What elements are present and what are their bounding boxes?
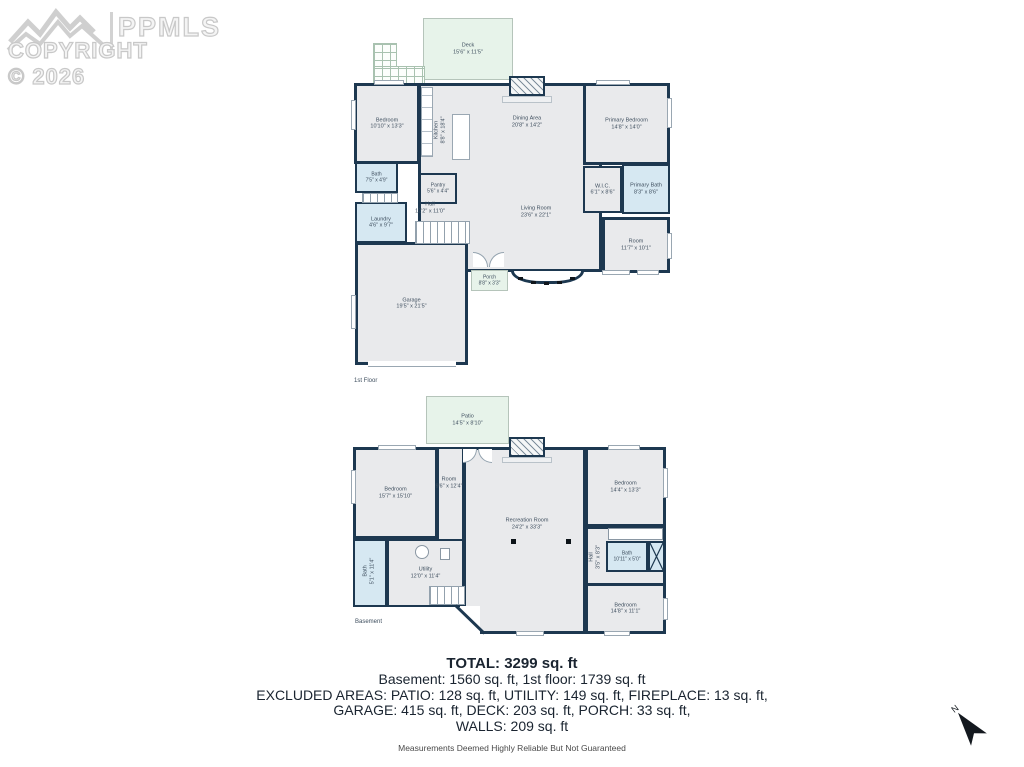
walk-in-closet: W.I.C.6'1" x 8'6" (583, 166, 622, 213)
excluded-areas-text-3: WALLS: 209 sq. ft (0, 719, 1024, 735)
room-basement (437, 447, 464, 554)
garage-door-icon (368, 361, 456, 367)
north-arrow-icon: N (948, 698, 1000, 760)
kitchen-cabinets-icon (421, 87, 433, 157)
closet-icon (362, 193, 398, 203)
water-heater-icon (440, 548, 450, 560)
window-icon (667, 98, 672, 128)
disclaimer-text: Measurements Deemed Highly Reliable But … (0, 743, 1024, 753)
excluded-areas-text-1: EXCLUDED AREAS: PATIO: 128 sq. ft, UTILI… (0, 688, 1024, 704)
floor-plan-page: PPMLS COPYRIGHT © 2026 Deck15'6" x 11'5"… (0, 0, 1024, 767)
fireplace-hearth-icon (502, 457, 552, 463)
bath-basement-right: Bath10'11" x 5'0" (606, 541, 648, 572)
primary-bedroom: Primary Bedroom14'8" x 14'0" (583, 83, 670, 165)
window-icon (516, 631, 544, 636)
floors-area-text: Basement: 1560 sq. ft, 1st floor: 1739 s… (0, 672, 1024, 688)
bedroom-basement-bottom: Bedroom14'8" x 11'1" (585, 583, 666, 634)
hall-label: Hall12'2" x 11'0" (415, 202, 445, 215)
closet-icon (608, 528, 663, 540)
furnace-icon (415, 545, 429, 559)
room-basement-label: Room9'6" x 12'4" (435, 477, 462, 490)
fireplace-icon (509, 437, 545, 457)
flex-room: Room11'7" x 10'1" (602, 217, 670, 273)
window-icon (608, 445, 640, 450)
bedroom-basement-left: Bedroom15'7" x 15'10" (353, 447, 438, 539)
window-icon (351, 470, 356, 504)
garage: Garage19'5" x 21'5" (355, 242, 468, 365)
crawl-space-x-icon (648, 541, 665, 572)
window-icon (667, 233, 672, 259)
patio-area: Patio14'5" x 8'10" (426, 396, 509, 444)
fireplace-hearth-icon (502, 96, 552, 103)
first-floor-name: 1st Floor (354, 378, 377, 384)
window-icon (374, 80, 404, 85)
bedroom-first-floor: Bedroom10'10" x 13'3" (354, 83, 420, 164)
support-post-icon (511, 539, 516, 544)
bath-first-floor: Bath7'5" x 4'9" (355, 162, 398, 193)
area-summary: TOTAL: 3299 sq. ft Basement: 1560 sq. ft… (0, 655, 1024, 753)
laundry-room: Laundry4'6" x 9'7" (355, 202, 407, 243)
deck-area: Deck15'6" x 11'5" (423, 18, 513, 80)
kitchen-island-icon (452, 114, 470, 160)
window-icon (596, 80, 630, 85)
window-icon (663, 468, 668, 498)
window-icon (351, 100, 356, 130)
stairs-icon (429, 586, 465, 605)
fireplace-icon (509, 76, 545, 96)
window-icon (663, 598, 668, 620)
pantry-room: Pantry5'6" x 4'4" (419, 173, 457, 204)
bedroom-basement-right: Bedroom14'4" x 13'3" (585, 447, 666, 527)
total-area-text: TOTAL: 3299 sq. ft (0, 655, 1024, 672)
basement-floor-name: Basement (355, 619, 382, 625)
window-icon (378, 445, 416, 450)
dining-area-label: Dining Area20'8" x 14'2" (512, 116, 542, 129)
window-icon (351, 295, 356, 329)
window-icon (637, 270, 659, 275)
excluded-areas-text-2: GARAGE: 415 sq. ft, DECK: 203 sq. ft, PO… (0, 703, 1024, 719)
recreation-room-label: Recreation Room24'2" x 33'3" (506, 518, 549, 531)
stairs-icon (415, 221, 470, 244)
kitchen-label: Kitchen8'8" x 18'4" (434, 116, 447, 143)
primary-bath: Primary Bath8'3" x 8'6" (622, 164, 670, 214)
living-room-label: Living Room23'6" x 22'1" (521, 206, 552, 219)
bath-basement-left-label: Bath5'1" x 11'4" (363, 558, 376, 585)
porch-area: Porch8'8" x 3'3" (471, 270, 508, 291)
window-icon (604, 631, 630, 636)
copyright-text: COPYRIGHT © 2026 (8, 38, 148, 90)
window-icon (602, 270, 630, 275)
hall-basement-label: Hall3'5" x 8'3" (589, 545, 602, 569)
support-post-icon (566, 539, 571, 544)
